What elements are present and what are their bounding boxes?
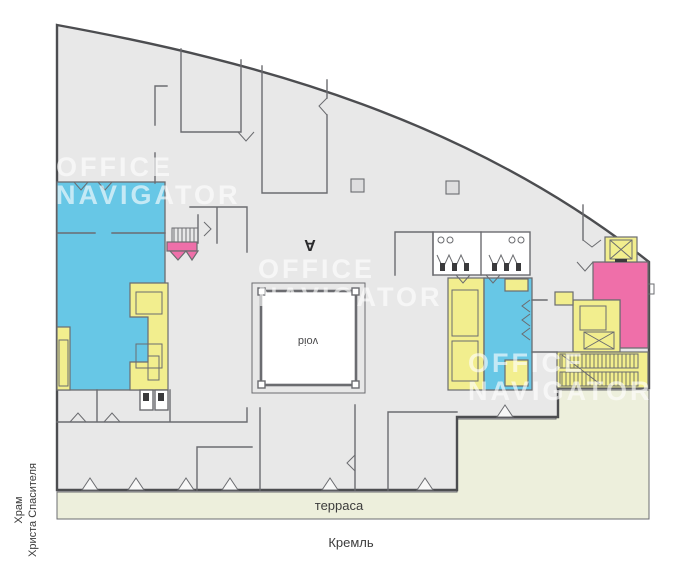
toilet-icon	[492, 263, 497, 271]
stair-flight	[172, 228, 198, 242]
floor-plan-page: void OFFICE	[0, 0, 679, 562]
terrace-label: терраса	[315, 498, 364, 513]
watermark-text: OFFICE	[56, 152, 173, 182]
kremlin-label: Кремль	[328, 535, 374, 550]
watermark-text: NAVIGATOR	[468, 376, 653, 406]
watermark-text: NAVIGATOR	[56, 180, 241, 210]
column	[351, 179, 364, 192]
toilet-icon	[440, 263, 445, 271]
toilet-icon	[158, 393, 164, 401]
toilet-icon	[452, 263, 457, 271]
floor-plan-svg: void OFFICE	[0, 0, 679, 562]
watermark-text: NAVIGATOR	[258, 282, 443, 312]
elevator-door	[615, 259, 627, 262]
void-corner-column	[352, 381, 359, 388]
landmark-label-line1: Храм	[13, 496, 25, 523]
pink-landing	[167, 242, 197, 251]
watermark-text: OFFICE	[468, 348, 585, 378]
toilet-icon	[504, 263, 509, 271]
zone-yellow-small	[555, 292, 573, 305]
section-marker: A	[304, 236, 316, 253]
toilet-icon	[516, 263, 521, 271]
column	[446, 181, 459, 194]
void-corner-column	[258, 381, 265, 388]
toilet-icon	[143, 393, 149, 401]
wc-block	[433, 232, 530, 275]
toilet-icon	[464, 263, 469, 271]
void-label: void	[298, 335, 318, 347]
zone-yellow-accent-top	[505, 279, 528, 291]
landmark-label-line2: Христа Спасителя	[27, 463, 39, 557]
watermark-text: OFFICE	[258, 254, 375, 284]
